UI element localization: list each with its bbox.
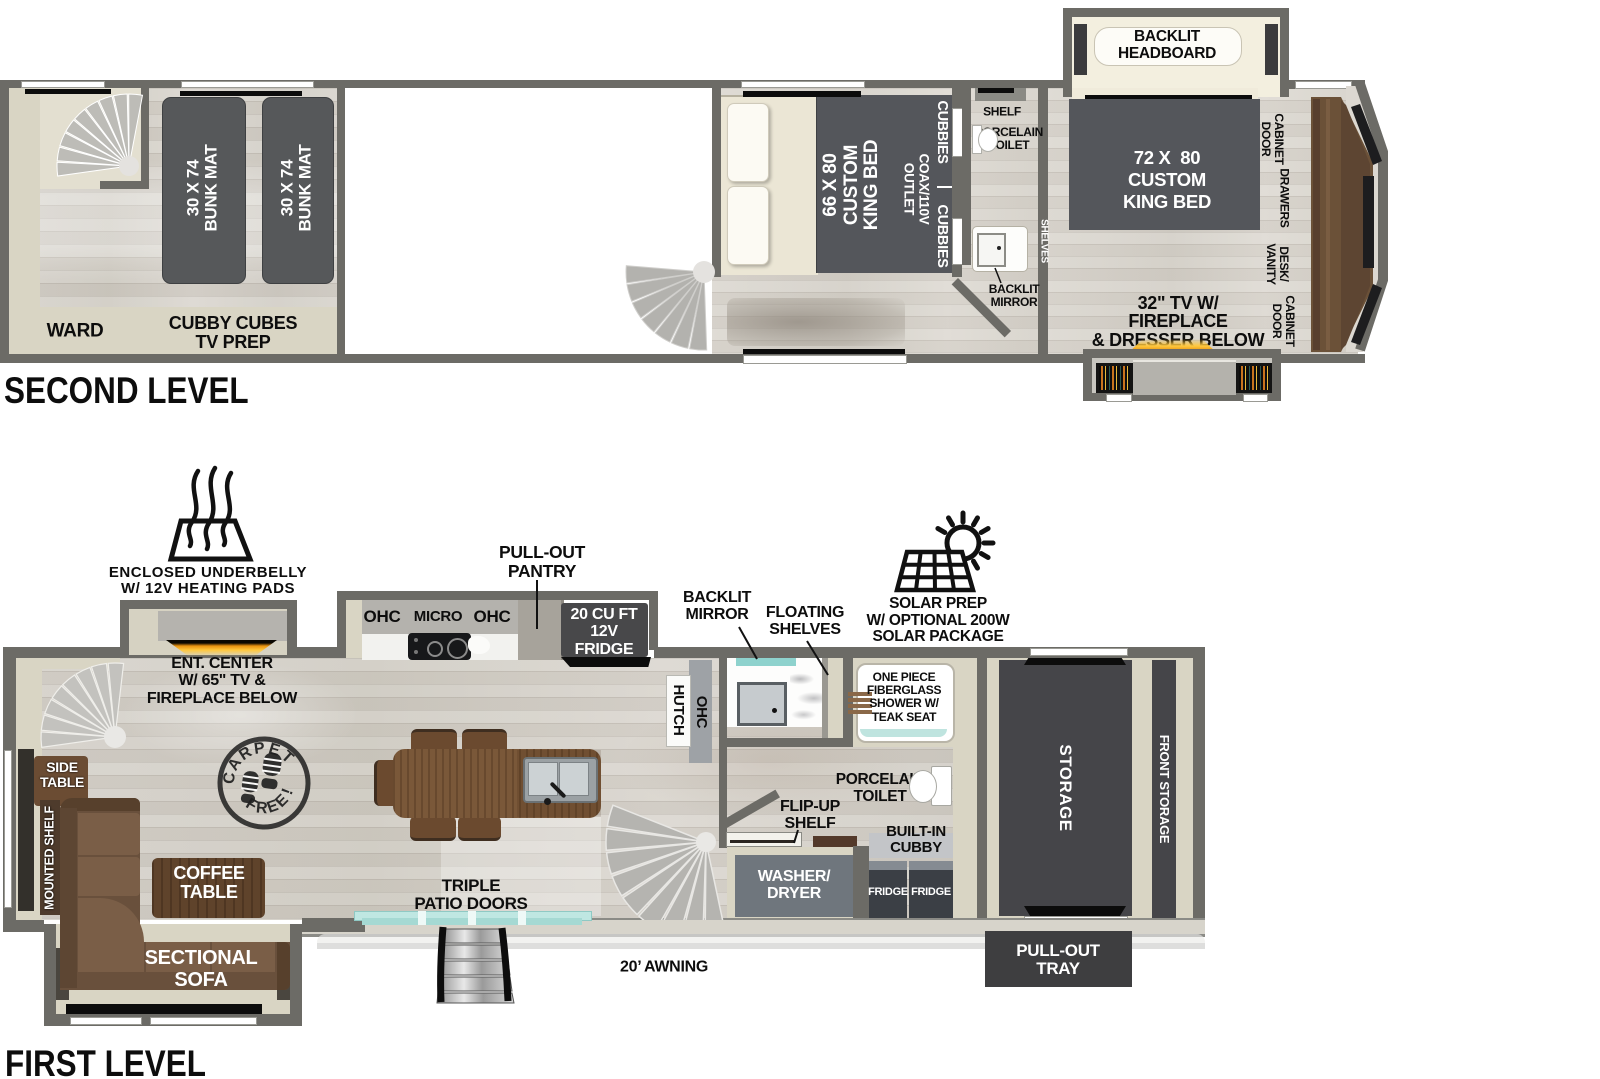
svg-text:P: P <box>253 740 266 758</box>
